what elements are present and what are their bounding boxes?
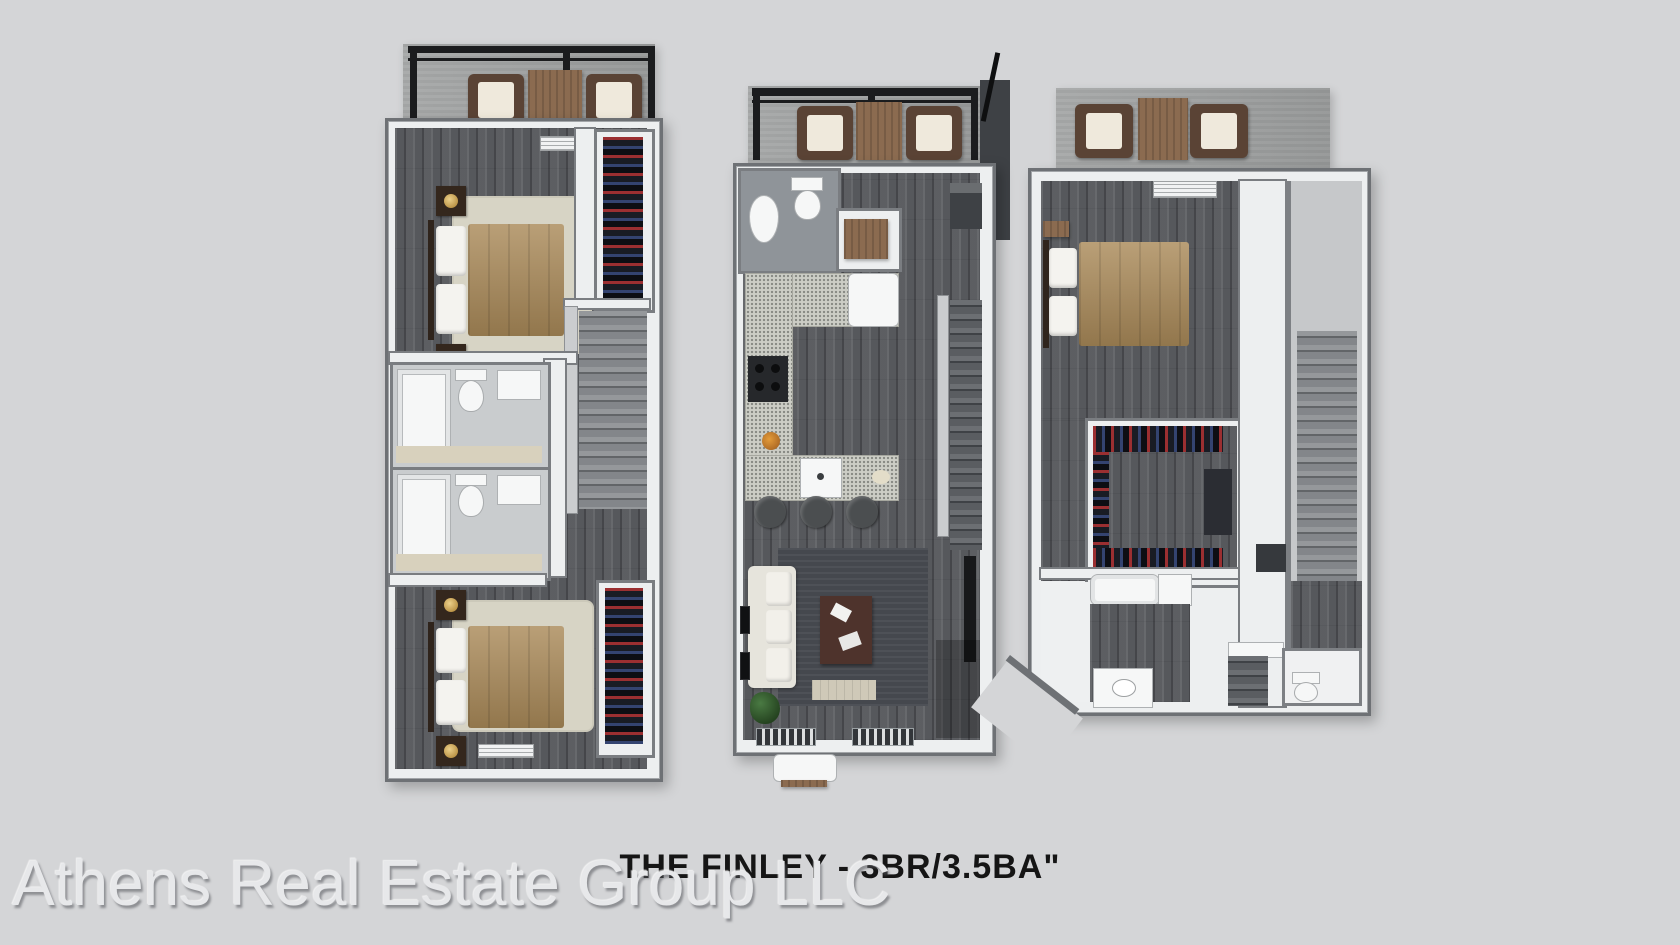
pillow xyxy=(436,284,466,334)
chair-cushion xyxy=(1086,113,1122,149)
closet-shelf xyxy=(844,219,888,259)
lamp xyxy=(444,194,458,208)
pergola-post xyxy=(971,88,978,160)
toilet xyxy=(458,380,484,412)
lower-steps xyxy=(1228,656,1268,706)
pillow xyxy=(436,680,466,725)
winder-steps xyxy=(1228,642,1282,706)
inner-wall xyxy=(1240,181,1285,706)
nightstand xyxy=(436,736,466,766)
bathroom xyxy=(390,362,551,473)
toilet xyxy=(794,190,821,220)
left-unit-outline xyxy=(385,118,663,782)
outdoor-bench-legs xyxy=(781,780,827,787)
pillow xyxy=(1049,248,1077,288)
partition-wall xyxy=(390,575,545,585)
headboard xyxy=(428,622,434,732)
toilet-tank xyxy=(791,177,823,191)
chair-cushion xyxy=(478,82,514,118)
patio-chair xyxy=(1075,104,1133,158)
pillow xyxy=(1049,296,1077,336)
pergola-post xyxy=(648,46,655,126)
bar-stool xyxy=(754,496,786,528)
stair-banister xyxy=(565,307,577,513)
window xyxy=(756,728,816,746)
ceiling-vent xyxy=(1153,181,1217,198)
comforter xyxy=(468,224,564,336)
book xyxy=(838,631,862,651)
pergola-post xyxy=(753,88,760,160)
patio-table xyxy=(1138,98,1188,160)
stair-treads xyxy=(579,311,647,509)
bar-stool xyxy=(846,496,878,528)
sink-vanity xyxy=(497,475,541,505)
clothes-rack xyxy=(605,588,643,744)
wall-art xyxy=(740,606,750,634)
burner xyxy=(755,382,764,391)
pillow xyxy=(436,628,466,673)
chair-cushion xyxy=(596,82,632,118)
sink-drain xyxy=(817,473,824,480)
pergola-beam xyxy=(408,46,655,53)
sofa-cushion xyxy=(766,572,792,606)
bar-stool xyxy=(800,496,832,528)
sink-vanity xyxy=(1093,668,1153,708)
floorplan-rendering: THE FINLEY - 3BR/3.5BA" Athens Real Esta… xyxy=(0,0,1680,945)
utility-box-top xyxy=(950,183,982,193)
balcony-table xyxy=(856,102,902,160)
potted-plant xyxy=(750,692,780,724)
stair-treads xyxy=(1297,331,1357,581)
coffee-table xyxy=(820,596,872,664)
book xyxy=(830,603,852,623)
bed xyxy=(1043,240,1191,348)
pillow xyxy=(436,226,466,276)
comforter xyxy=(1079,242,1189,346)
walk-in-closet xyxy=(1085,418,1251,588)
headboard xyxy=(428,220,434,340)
pedestal-sink xyxy=(749,195,779,243)
fruit-bowl xyxy=(762,432,780,450)
bath-counter xyxy=(1158,574,1192,606)
dresser xyxy=(1204,469,1232,535)
closet xyxy=(596,580,655,758)
partition-wall xyxy=(576,129,594,307)
balcony-chair xyxy=(906,106,962,160)
pergola-beam xyxy=(408,58,655,61)
burner xyxy=(771,364,780,373)
staircase xyxy=(565,307,649,513)
entry-closet xyxy=(836,208,902,272)
sofa-cushion xyxy=(766,610,792,644)
burner xyxy=(755,364,764,373)
chair-cushion xyxy=(916,115,952,151)
nightstand xyxy=(436,186,466,216)
sofa xyxy=(748,566,796,688)
clothes-rack xyxy=(1093,426,1223,452)
bed xyxy=(428,220,568,340)
balcony-chair xyxy=(797,106,853,160)
bath-mat xyxy=(396,446,542,463)
wall-art xyxy=(740,652,750,680)
clothes-rack xyxy=(603,137,643,299)
comforter xyxy=(468,626,564,728)
plate xyxy=(872,470,890,484)
sink-basin xyxy=(1112,679,1136,697)
bath-mat xyxy=(396,554,542,571)
bathroom xyxy=(390,467,551,581)
ottoman-bench xyxy=(812,680,876,700)
bathtub xyxy=(1090,574,1160,606)
chair-cushion xyxy=(807,115,843,151)
stair-treads xyxy=(950,300,982,550)
watermark: Athens Real Estate Group LLC xyxy=(12,851,891,915)
pergola-beam xyxy=(752,88,978,96)
sink-vanity xyxy=(497,370,541,400)
corridor-window xyxy=(1256,544,1286,572)
refrigerator xyxy=(848,273,899,327)
toilet xyxy=(1294,682,1318,702)
patio-chair xyxy=(1190,104,1248,158)
powder-room xyxy=(738,168,841,274)
floor-shadow xyxy=(936,640,980,738)
island-sink xyxy=(800,458,842,498)
chair-cushion xyxy=(1201,113,1237,149)
middle-unit-outline xyxy=(733,163,996,756)
lamp xyxy=(444,744,458,758)
lamp xyxy=(444,598,458,612)
nightstand xyxy=(1043,221,1069,237)
pergola-post xyxy=(410,46,417,126)
clothes-rack xyxy=(1093,452,1109,548)
hall-floor xyxy=(1041,419,1085,581)
staircase-corridor xyxy=(1291,181,1362,706)
stair-banister xyxy=(938,296,948,536)
bed xyxy=(428,622,568,732)
water-closet xyxy=(1282,648,1362,706)
floor-vent xyxy=(478,744,534,758)
utility-box xyxy=(950,183,982,229)
stove xyxy=(748,356,788,402)
sofa-cushion xyxy=(766,648,792,682)
nightstand xyxy=(436,590,466,620)
outdoor-bench xyxy=(773,754,837,782)
closet xyxy=(594,129,655,313)
toilet xyxy=(458,485,484,517)
window xyxy=(852,728,914,746)
right-unit-outline xyxy=(1028,168,1371,716)
burner xyxy=(771,382,780,391)
